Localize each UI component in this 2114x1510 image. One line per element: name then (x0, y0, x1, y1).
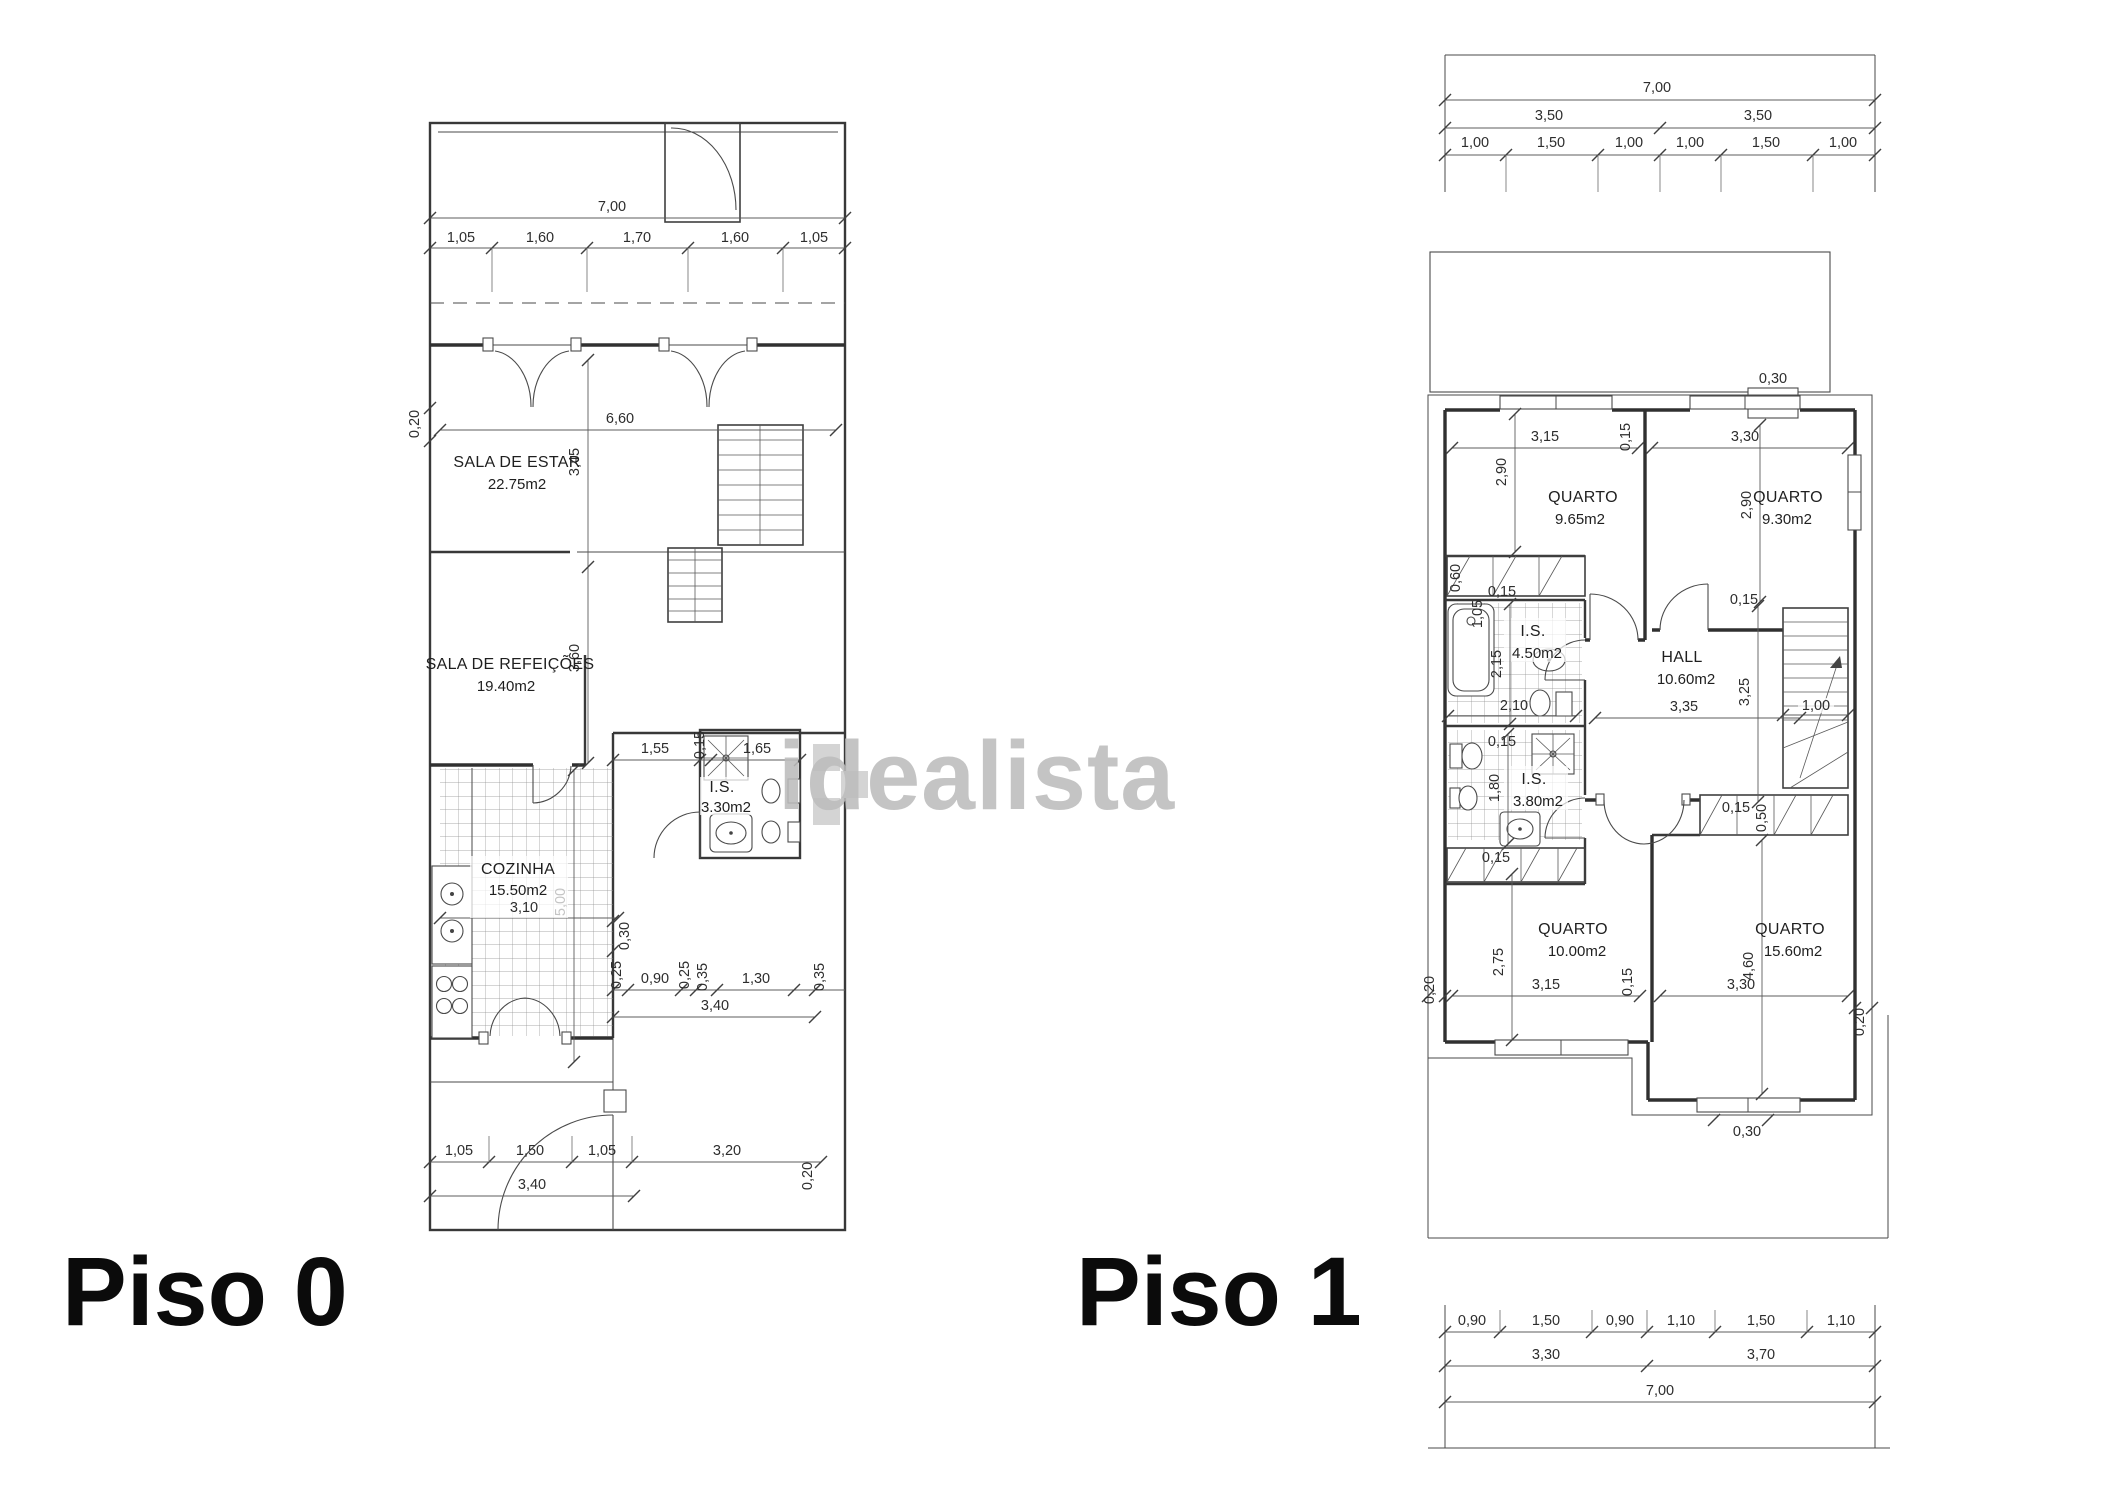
p0-dim-030: 0,30 (617, 922, 633, 950)
floor-label-piso0: Piso 0 (62, 1236, 348, 1348)
p1-dim-mid-wall2: 0,15 (1620, 968, 1636, 996)
p0-dim-wall-back: 0,20 (800, 1162, 816, 1190)
p0-room-sala-estar-name: SALA DE ESTAR (453, 454, 580, 471)
p1-room-hall-name: HALL (1661, 649, 1702, 666)
quarto3-double-door-arcs (1604, 800, 1684, 844)
p1-dim-half-1: 3,50 (1744, 108, 1772, 124)
p0-dim-is-width: 1,65 (743, 741, 771, 757)
p1-room-is2-area: 3.80m2 (1513, 793, 1563, 810)
floorplan-page: 7,00 1,05 1,60 1,70 1,60 1,05 0,20 6,60 … (0, 0, 2114, 1510)
p0-dim-cozinha-width: 3,10 (510, 900, 538, 916)
p1-dim-closet1-depth: 0,60 (1448, 564, 1464, 592)
p1-dim-total-width: 7,00 (1643, 80, 1671, 96)
p1-dim-back-2: 0,90 (1606, 1313, 1634, 1329)
p1-dim-b1-depth: 2,15 (1489, 650, 1505, 678)
p1-dim-b1-width: 2,10 (1500, 698, 1528, 714)
p0-dim-back-right: 3,20 (713, 1143, 741, 1159)
washbasin (710, 814, 752, 852)
piso1-bottom-dimension-box: 0,90 1,50 0,90 1,10 1,50 1,10 3,30 3,70 … (1428, 1305, 1890, 1448)
p0-dim-entry-1: 0,90 (641, 971, 669, 987)
p0-room-refeicoes-name: SALA DE REFEIÇÕES (426, 653, 595, 673)
piso0-dimensions: 7,00 1,05 1,60 1,70 1,60 1,05 0,20 6,60 … (407, 199, 851, 1202)
p1-dim-back-4: 1,50 (1747, 1313, 1775, 1329)
p0-dim-front-0: 1,05 (447, 230, 475, 246)
p0-dim-015: 0,15 (692, 731, 708, 759)
washbasin (1500, 812, 1540, 846)
bathroom2: I.S. 3.80m2 0,15 1,80 (1448, 728, 1585, 850)
p0-dim-entry-total: 3,40 (701, 998, 729, 1014)
stove (432, 966, 472, 1038)
piso1-staircase: 1,00 (1777, 608, 1854, 788)
p0-dim-back-0: 1,05 (445, 1143, 473, 1159)
p1-dim-back-0: 0,90 (1458, 1313, 1486, 1329)
p1-dim-closet-hall-015: 0,15 (1722, 800, 1750, 816)
piso1-top-dimension-box: 7,00 3,50 3,50 1,00 1,50 1,00 1,00 1,50 … (1439, 55, 1881, 192)
p0-dim-wall-side: 0,20 (407, 410, 423, 438)
entry-door-arc (671, 128, 736, 210)
p1-dim-front-2: 1,00 (1615, 135, 1643, 151)
p1-dim-closet-hall-050: 0,50 (1754, 804, 1770, 832)
p0-dim-back-total: 3,40 (518, 1177, 546, 1193)
p1-dim-b2-depth: 1,80 (1487, 774, 1503, 802)
kitchen-sink (432, 866, 472, 964)
french-door-left (483, 338, 581, 407)
bathroom1: I.S. 4.50m2 0,15 1,05 2,15 2,10 (1442, 584, 1585, 730)
p0-dim-back-1: 1,50 (516, 1143, 544, 1159)
p1-dim-b1-015: 0,15 (1488, 584, 1516, 600)
piso1-plan: 7,00 3,50 3,50 1,00 1,50 1,00 1,00 1,50 … (1422, 55, 1890, 1448)
p1-room-quarto3-area: 10.00m2 (1548, 943, 1606, 960)
p1-dim-half-0: 3,50 (1535, 108, 1563, 124)
quarto2-door-arc (1660, 584, 1708, 630)
p0-room-is-area: 3.30m2 (701, 799, 751, 816)
p0-dim-entry-5: 0,35 (812, 963, 828, 991)
p0-dim-entry-0: 0,25 (609, 961, 625, 989)
p1-dim-back-5: 1,10 (1827, 1313, 1855, 1329)
p1-room-quarto1-name: QUARTO (1548, 489, 1618, 506)
p1-dim-q1-width: 3,15 (1531, 429, 1559, 445)
p1-dim-back-3: 1,10 (1667, 1313, 1695, 1329)
p1-dim-front-3: 1,00 (1676, 135, 1704, 151)
p1-dim-closet3-015: 0,15 (1482, 850, 1510, 866)
p1-room-quarto1-area: 9.65m2 (1555, 511, 1605, 528)
toilet (1450, 743, 1482, 769)
p0-room-sala-estar-area: 22.75m2 (488, 476, 546, 493)
p1-dim-back-half-0: 3,30 (1532, 1347, 1560, 1363)
piso0-staircase (668, 425, 803, 622)
french-door-right (659, 338, 757, 407)
p1-room-is1-area: 4.50m2 (1512, 645, 1562, 662)
idealista-watermark: idealista (778, 720, 1258, 832)
piso0-plan: 7,00 1,05 1,60 1,70 1,60 1,05 0,20 6,60 … (407, 123, 851, 1230)
p1-dim-wall-left: 0,20 (1422, 976, 1438, 1004)
p1-dim-q1-depth: 2,90 (1494, 458, 1510, 486)
p1-dim-q4-depth: 4,60 (1741, 952, 1757, 980)
p0-dim-total-width: 7,00 (598, 199, 626, 215)
p1-dim-b2-015: 0,15 (1488, 734, 1516, 750)
closet-quarto3: 0,15 (1447, 848, 1585, 882)
p1-dim-hall-top-wall: 0,15 (1730, 592, 1758, 608)
p0-room-cozinha-area: 15.50m2 (489, 882, 547, 899)
p1-dim-front-0: 1,00 (1461, 135, 1489, 151)
p1-dim-front-5: 1,00 (1829, 135, 1857, 151)
p0-dim-back-2: 1,05 (588, 1143, 616, 1159)
floor-label-piso1: Piso 1 (1076, 1236, 1362, 1348)
p0-room-refeicoes-area: 19.40m2 (477, 678, 535, 695)
column (604, 1090, 626, 1112)
p1-dim-front-4: 1,50 (1752, 135, 1780, 151)
p1-dim-deck-step: 0,30 (1759, 371, 1787, 387)
p1-room-quarto2-name: QUARTO (1753, 489, 1823, 506)
p1-dim-wall-right: 0,20 (1852, 1008, 1868, 1036)
p1-dim-q3-depth: 2,75 (1491, 948, 1507, 976)
p0-dim-hall-width: 1,55 (641, 741, 669, 757)
p0-dim-front-1: 1,60 (526, 230, 554, 246)
p1-dim-front-1: 1,50 (1537, 135, 1565, 151)
p1-dim-back-1: 1,50 (1532, 1313, 1560, 1329)
bathroom-door-arc (654, 812, 700, 858)
p1-room-is1-name: I.S. (1520, 623, 1545, 640)
p0-dim-entry-4: 1,30 (742, 971, 770, 987)
p0-dim-sala-width: 6,60 (606, 411, 634, 427)
p1-room-quarto2-area: 9.30m2 (1762, 511, 1812, 528)
p1-dim-hall-width: 3,35 (1670, 699, 1698, 715)
p0-dim-entry-3: 0,35 (695, 963, 711, 991)
piso1-room-labels: QUARTO 9.65m2 QUARTO 9.30m2 HALL 10.60m2… (1538, 489, 1825, 960)
p1-room-quarto4-name: QUARTO (1755, 921, 1825, 938)
p0-dim-entry-2: 0,25 (677, 961, 693, 989)
p1-dim-back-half-1: 3,70 (1747, 1347, 1775, 1363)
p1-dim-b1-105: 1,05 (1470, 600, 1486, 628)
p1-room-is2-name: I.S. (1521, 771, 1546, 788)
shower (704, 736, 748, 780)
p0-dim-front-2: 1,70 (623, 230, 651, 246)
p1-dim-q2-width: 3,30 (1731, 429, 1759, 445)
bidet (1450, 786, 1477, 810)
p1-room-quarto4-area: 15.60m2 (1764, 943, 1822, 960)
entry-hall-door (498, 1115, 613, 1230)
p0-room-is-name: I.S. (709, 779, 734, 796)
stair-direction-arrow (1830, 656, 1842, 668)
closet-hall: 0,15 0,50 (1700, 795, 1848, 835)
p0-dim-front-4: 1,05 (800, 230, 828, 246)
p1-dim-back-total: 7,00 (1646, 1383, 1674, 1399)
p1-dim-mid-wall: 0,15 (1618, 423, 1634, 451)
quarto1-door-arc (1590, 594, 1638, 640)
p1-room-hall-area: 10.60m2 (1657, 671, 1715, 688)
p1-dim-stair-width: 1,00 (1802, 698, 1830, 714)
p1-dim-q3-width: 3,15 (1532, 977, 1560, 993)
p0-dim-front-3: 1,60 (721, 230, 749, 246)
p1-dim-back-step: 0,30 (1733, 1124, 1761, 1140)
p0-room-cozinha-name: COZINHA (481, 861, 555, 878)
p1-room-quarto3-name: QUARTO (1538, 921, 1608, 938)
p1-dim-hall-depth: 3,25 (1737, 678, 1753, 706)
